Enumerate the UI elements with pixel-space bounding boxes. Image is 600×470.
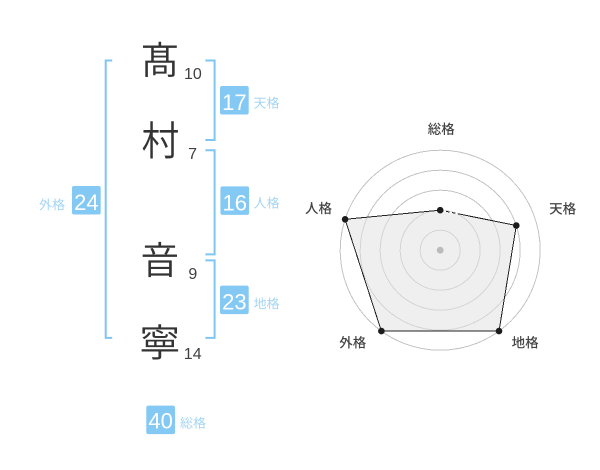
svg-text:40: 40 [148, 409, 172, 434]
svg-text:9: 9 [188, 266, 197, 283]
svg-text:10: 10 [184, 66, 202, 83]
svg-text:16: 16 [223, 190, 247, 215]
svg-text:24: 24 [74, 190, 98, 215]
svg-text:17: 17 [222, 90, 246, 115]
svg-text:23: 23 [222, 290, 246, 315]
svg-text:7: 7 [188, 146, 197, 163]
svg-text:14: 14 [184, 346, 202, 363]
